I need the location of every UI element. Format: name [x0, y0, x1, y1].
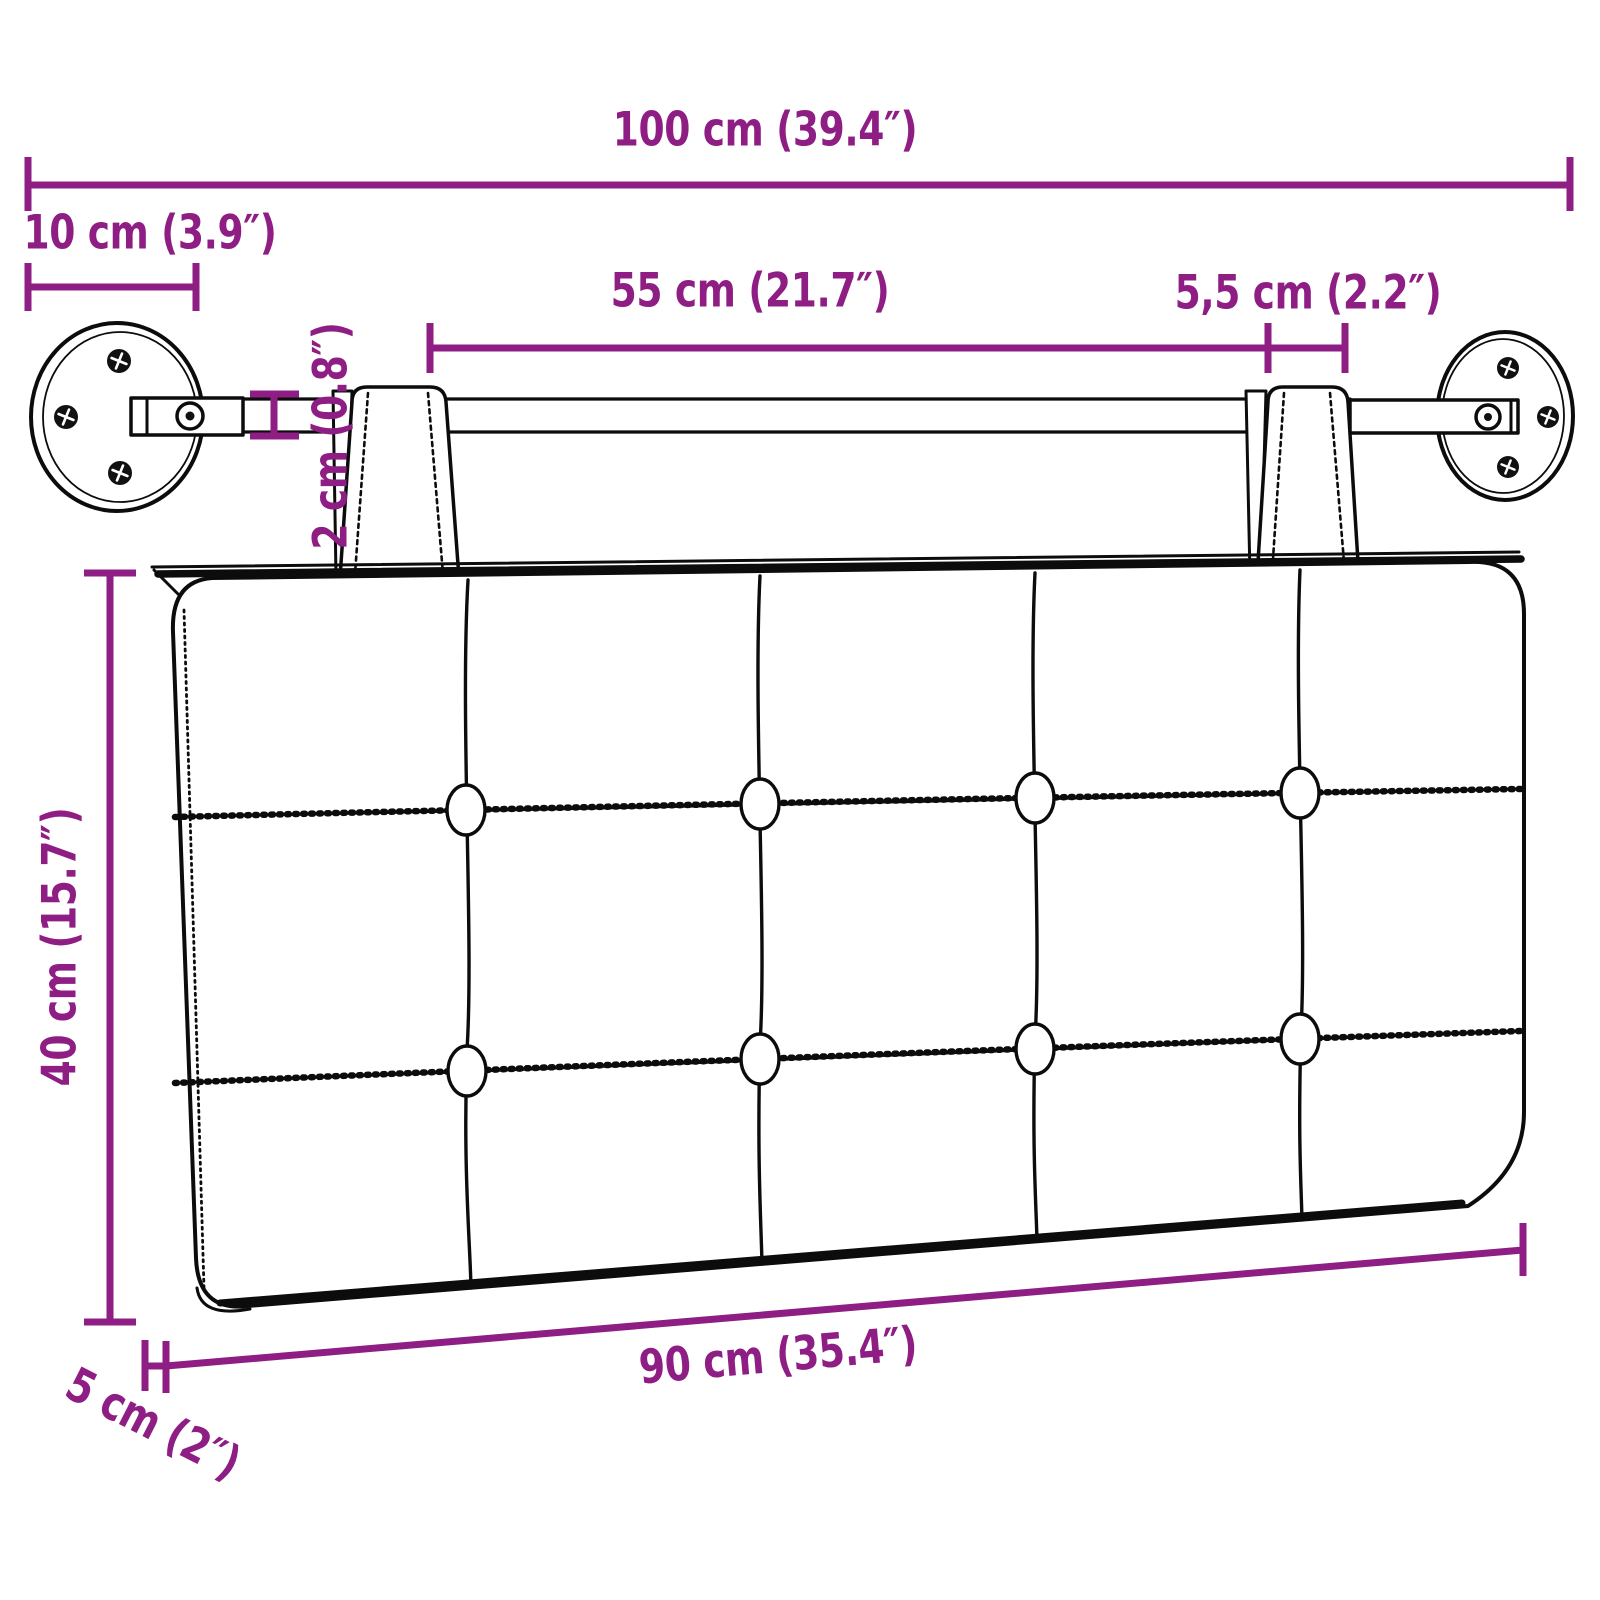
button-icon: [1016, 1024, 1054, 1074]
dimension-line-cushion-height: [84, 573, 136, 1322]
button-icon: [741, 1034, 779, 1084]
screw-icon: [1497, 357, 1519, 379]
mounting-bracket-left-icon: [131, 398, 243, 435]
screw-icon: [1537, 406, 1559, 428]
button-icon: [741, 779, 779, 829]
dimension-label-rod-thickness: 2 cm (0.8″): [304, 322, 359, 549]
screw-icon: [1497, 456, 1519, 478]
button-icon: [448, 1046, 486, 1096]
headboard-cushion: [152, 552, 1524, 1311]
hanging-strap-right-icon: [1246, 387, 1359, 578]
dimension-line-total-width: [28, 157, 1570, 211]
dimension-label-cushion-height: 40 cm (15.7″): [33, 808, 88, 1087]
button-icon: [447, 785, 485, 835]
button-icon: [1016, 773, 1054, 823]
dimension-line-mount-offset: [28, 263, 196, 311]
dimension-line-strap-distance: [430, 323, 1345, 373]
button-icon: [1281, 768, 1319, 818]
dimension-label-strap-distance: 55 cm (21.7″): [611, 264, 890, 319]
dimension-label-mount-offset: 10 cm (3.9″): [24, 206, 277, 261]
button-icon: [1281, 1014, 1319, 1064]
screw-icon: [107, 349, 131, 373]
dimension-label-strap-width: 5,5 cm (2.2″): [1175, 266, 1442, 321]
screw-icon: [108, 461, 132, 485]
cushion-front-face: [173, 562, 1524, 1307]
dimension-label-total-width: 100 cm (39.4″): [613, 103, 917, 158]
screw-icon: [54, 405, 78, 429]
mounting-bracket-right-icon: [1350, 400, 1518, 433]
diagram-canvas: 100 cm (39.4″) 10 cm (3.9″) 55 cm (21.7″…: [0, 0, 1600, 1600]
